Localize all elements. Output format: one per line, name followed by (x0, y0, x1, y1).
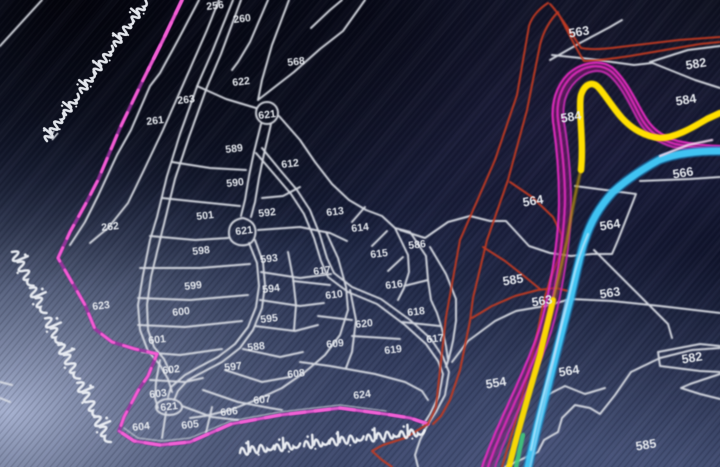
svg-text:624: 624 (353, 388, 372, 402)
svg-text:593: 593 (260, 252, 279, 266)
svg-text:616: 616 (385, 278, 404, 292)
svg-text:586: 586 (408, 238, 427, 252)
svg-text:594: 594 (262, 282, 281, 296)
svg-text:590: 590 (226, 176, 245, 190)
svg-text:607: 607 (253, 393, 272, 407)
svg-text:609: 609 (326, 337, 345, 351)
svg-text:623: 623 (92, 299, 111, 313)
svg-text:617: 617 (426, 332, 445, 346)
svg-text:589: 589 (225, 142, 244, 156)
svg-text:622: 622 (232, 75, 251, 89)
svg-text:618: 618 (407, 305, 426, 319)
svg-text:612: 612 (281, 157, 300, 171)
svg-text:606: 606 (220, 405, 239, 419)
svg-text:260: 260 (233, 12, 252, 26)
svg-text:600: 600 (172, 305, 191, 319)
svg-text:592: 592 (258, 206, 277, 220)
svg-text:598: 598 (192, 244, 211, 258)
svg-text:262: 262 (101, 220, 120, 234)
svg-text:601: 601 (148, 333, 167, 347)
svg-text:599: 599 (184, 279, 203, 293)
svg-text:501: 501 (196, 209, 215, 223)
svg-text:613: 613 (326, 205, 345, 219)
svg-text:605: 605 (181, 418, 200, 432)
svg-text:602: 602 (162, 363, 181, 377)
svg-text:615: 615 (370, 247, 389, 261)
svg-text:610: 610 (325, 288, 344, 302)
svg-text:603: 603 (149, 387, 168, 401)
svg-text:256: 256 (206, 0, 225, 13)
svg-text:608: 608 (287, 367, 306, 381)
svg-text:620: 620 (355, 317, 374, 331)
svg-text:621: 621 (258, 108, 277, 122)
svg-text:568: 568 (287, 55, 306, 69)
svg-text:614: 614 (351, 221, 370, 235)
svg-text:261: 261 (146, 114, 165, 128)
svg-text:595: 595 (260, 312, 279, 326)
svg-text:621: 621 (235, 224, 254, 238)
svg-text:621: 621 (160, 400, 179, 414)
svg-text:619: 619 (384, 343, 403, 357)
svg-text:617: 617 (313, 264, 332, 278)
svg-text:588: 588 (247, 340, 266, 354)
svg-text:597: 597 (224, 360, 243, 374)
svg-text:604: 604 (132, 420, 151, 434)
svg-text:263: 263 (177, 93, 196, 107)
